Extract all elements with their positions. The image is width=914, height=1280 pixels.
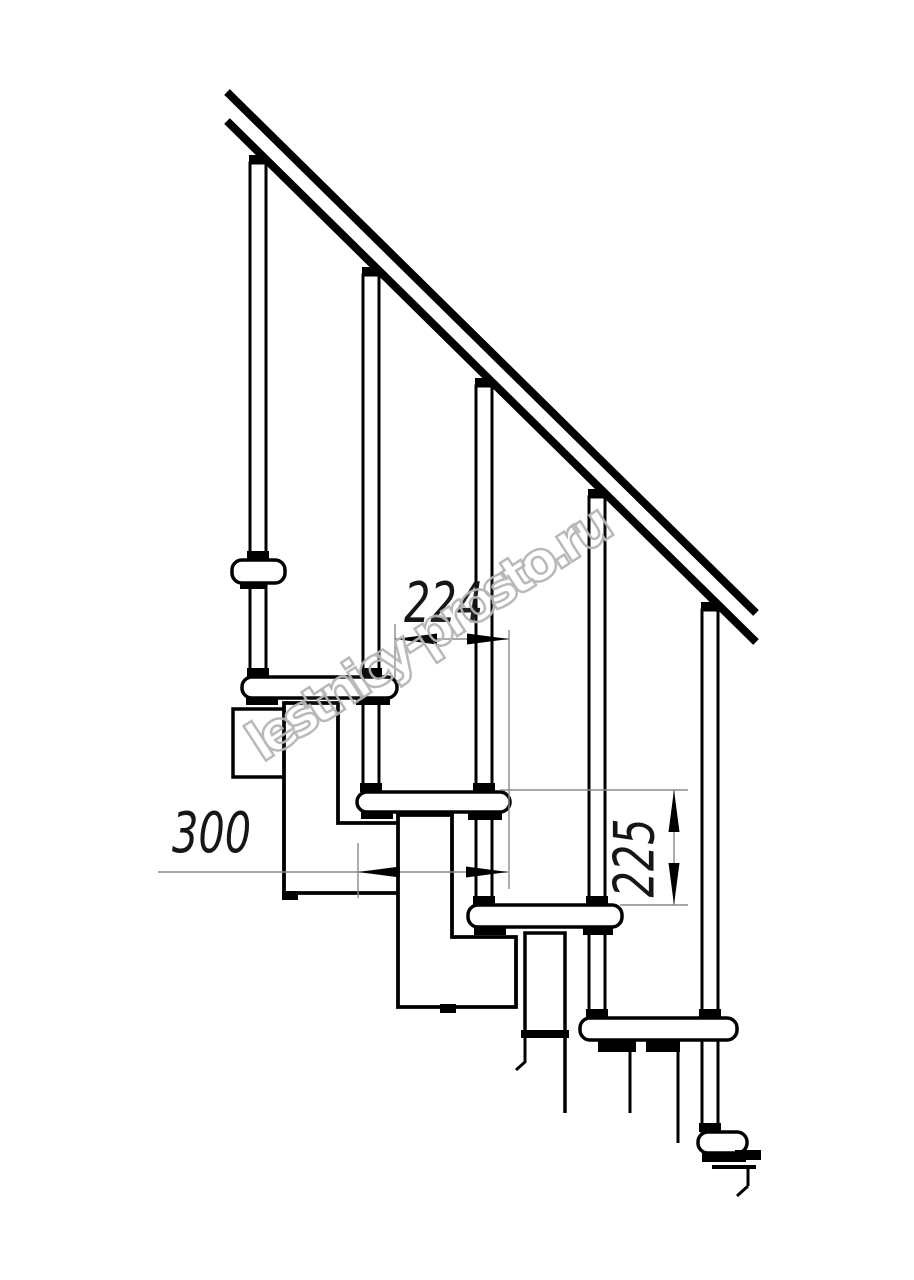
tread-top-stub xyxy=(232,560,285,583)
baluster-4 xyxy=(588,489,606,1018)
staircase-elevation-drawing xyxy=(0,0,914,1280)
dim-label-step-rise: 225 xyxy=(607,818,663,897)
base-break-lines xyxy=(712,1167,756,1196)
dim-225-arrow-up xyxy=(669,790,680,832)
staircase-drawing-page: 224 300 225 lestnicy-prosto.ru xyxy=(0,0,914,1280)
base-plate xyxy=(698,1132,747,1153)
module-chain-3 xyxy=(525,933,565,1032)
dim-label-tread-depth: 300 xyxy=(172,806,251,862)
tread-3 xyxy=(468,905,622,927)
tread-4 xyxy=(580,1018,737,1040)
module-break-line-left xyxy=(516,1038,525,1070)
module-joint-band xyxy=(521,1030,569,1038)
tread-1 xyxy=(242,677,397,698)
baluster-2 xyxy=(362,267,380,792)
dim-225-arrow-down xyxy=(669,863,680,905)
baluster-1 xyxy=(249,155,267,677)
dim-label-step-run: 224 xyxy=(404,576,483,632)
baluster-5 xyxy=(701,602,719,1132)
tread-2 xyxy=(357,792,510,812)
wall-mount-box xyxy=(233,709,290,777)
